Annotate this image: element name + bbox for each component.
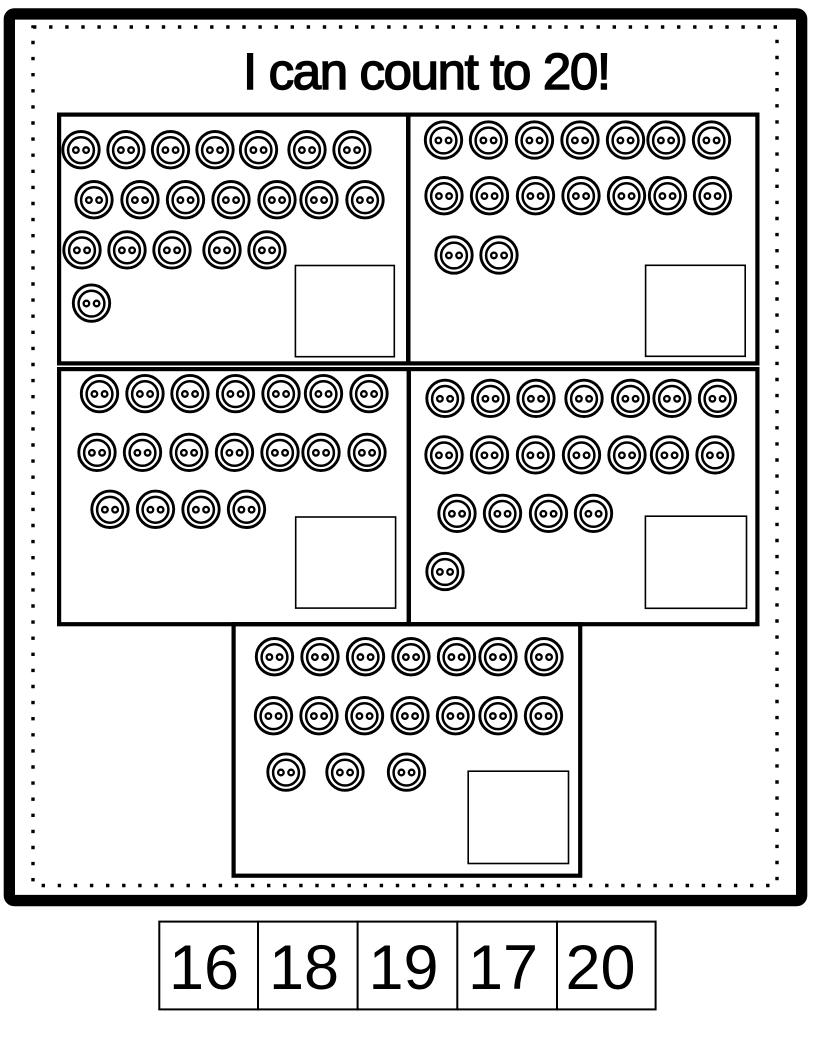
svg-text:20: 20	[565, 933, 635, 1003]
svg-text:16: 16	[169, 933, 239, 1003]
svg-text:19: 19	[368, 933, 438, 1003]
svg-text:17: 17	[468, 933, 538, 1003]
svg-text:18: 18	[269, 933, 339, 1003]
svg-text:I can count to 20!: I can count to 20!	[243, 43, 611, 100]
